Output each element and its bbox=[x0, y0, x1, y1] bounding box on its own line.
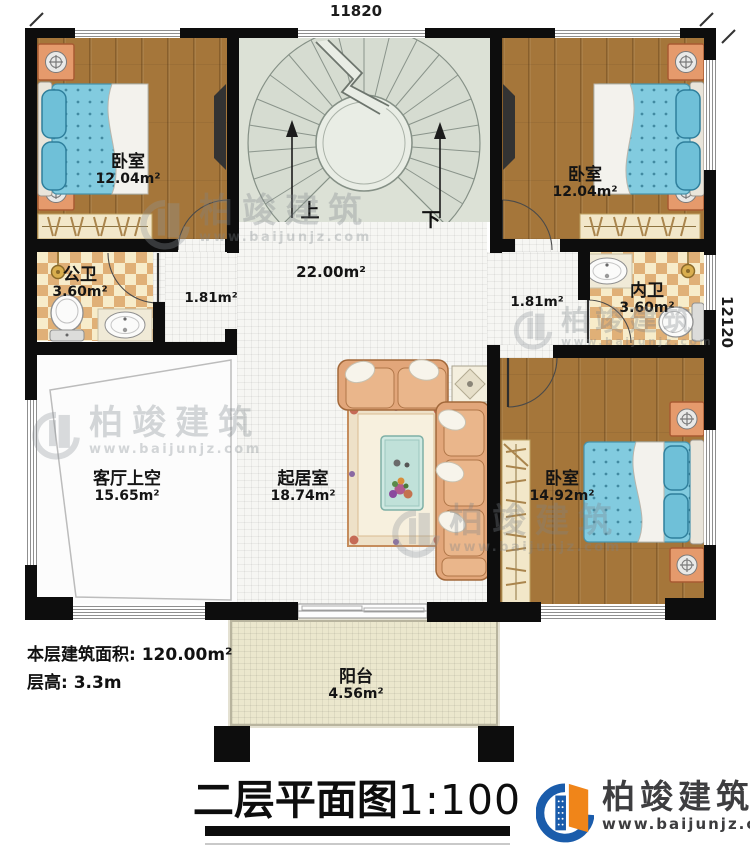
dimension-right: 12120 bbox=[718, 296, 736, 348]
room-name: 卧室 bbox=[545, 470, 579, 489]
company-name: 柏竣建筑 bbox=[602, 780, 750, 815]
room-label-bedroom-tr: 卧室 12.04m² bbox=[552, 166, 617, 201]
title-underline bbox=[205, 826, 510, 836]
room-label-public-bath: 公卫 3.60m² bbox=[52, 266, 107, 301]
wall bbox=[180, 28, 298, 38]
room-area: 18.74m² bbox=[270, 489, 335, 505]
wall bbox=[205, 602, 298, 620]
window bbox=[704, 255, 716, 310]
wall bbox=[153, 302, 165, 342]
room-label-bedroom-tl: 卧室 12.04m² bbox=[95, 153, 160, 188]
wall bbox=[37, 239, 178, 252]
room-area: 12.04m² bbox=[552, 185, 617, 201]
room-label-balcony: 阳台 4.56m² bbox=[328, 668, 383, 703]
floor-plan-canvas: 11820 12120 上 下 卧室 12.04m² 卧室 12.04m² 卧室… bbox=[0, 0, 750, 856]
room-name: 客厅上空 bbox=[93, 470, 161, 489]
window bbox=[555, 28, 680, 38]
window bbox=[25, 400, 37, 565]
window bbox=[704, 430, 716, 545]
room-name: 起居室 bbox=[277, 470, 328, 489]
balcony-column bbox=[214, 726, 250, 762]
wall bbox=[25, 342, 237, 355]
title-underline-thin bbox=[205, 843, 510, 845]
bedroom-tr-floor bbox=[502, 38, 704, 239]
room-name: 阳台 bbox=[339, 668, 373, 687]
window bbox=[298, 28, 425, 38]
wall bbox=[487, 345, 500, 620]
bedroom-tl-floor bbox=[37, 38, 227, 239]
wall bbox=[553, 345, 716, 358]
door-opening-floor bbox=[515, 239, 560, 252]
company-logo-icon bbox=[536, 772, 594, 850]
door-opening-floor bbox=[153, 252, 165, 302]
room-label-living-room: 起居室 18.74m² bbox=[270, 470, 335, 505]
floor-height-note: 层高: 3.3m bbox=[27, 668, 122, 693]
wall bbox=[665, 598, 716, 620]
drawing-title-text: 二层平面图 bbox=[193, 776, 398, 824]
room-name: 卧室 bbox=[568, 166, 602, 185]
corridor-right-area-label: 1.81m² bbox=[510, 294, 563, 310]
balcony-column bbox=[478, 726, 514, 762]
window bbox=[541, 604, 665, 620]
wall bbox=[490, 38, 502, 253]
room-label-private-bath: 内卫 3.60m² bbox=[619, 282, 674, 317]
wall bbox=[704, 310, 716, 430]
dimension-top: 11820 bbox=[330, 2, 382, 20]
room-area: 15.65m² bbox=[94, 489, 159, 505]
stairwell-floor bbox=[239, 38, 490, 222]
floor-area-note: 本层建筑面积: 120.00m² bbox=[27, 640, 232, 665]
company-website: www.baijunjz.com bbox=[602, 815, 750, 833]
wall bbox=[425, 28, 555, 38]
window bbox=[75, 28, 180, 38]
room-area: 3.60m² bbox=[619, 301, 674, 317]
window bbox=[704, 60, 716, 170]
door-opening-floor bbox=[500, 345, 553, 358]
room-label-bedroom-br: 卧室 14.92m² bbox=[529, 470, 594, 505]
wall bbox=[578, 252, 590, 300]
corridor-left-area-label: 1.81m² bbox=[184, 290, 237, 306]
wall bbox=[225, 329, 237, 342]
wall bbox=[25, 597, 73, 620]
room-name: 内卫 bbox=[630, 282, 664, 301]
wall bbox=[704, 28, 716, 60]
hall-passage-floor bbox=[487, 252, 502, 345]
room-area: 12.04m² bbox=[95, 172, 160, 188]
room-name: 公卫 bbox=[63, 266, 97, 285]
room-label-living-void: 客厅上空 15.65m² bbox=[93, 470, 161, 505]
room-name: 卧室 bbox=[111, 153, 145, 172]
wall bbox=[502, 239, 515, 252]
room-area: 3.60m² bbox=[52, 285, 107, 301]
wall bbox=[560, 239, 716, 252]
door-opening-floor bbox=[178, 239, 225, 252]
window bbox=[73, 604, 205, 620]
wall bbox=[227, 38, 239, 253]
drawing-title: 二层平面图1:100 bbox=[193, 766, 521, 826]
stairs-down-label: 下 bbox=[421, 205, 440, 232]
wall bbox=[427, 602, 541, 622]
stairs-up-label: 上 bbox=[300, 196, 319, 223]
drawing-scale: 1:100 bbox=[398, 776, 521, 824]
hall-area-label: 22.00m² bbox=[296, 263, 366, 281]
company-logo: 柏竣建筑 www.baijunjz.com bbox=[536, 772, 750, 850]
room-area: 4.56m² bbox=[328, 687, 383, 703]
room-area: 14.92m² bbox=[529, 489, 594, 505]
door-opening-floor bbox=[578, 300, 590, 345]
